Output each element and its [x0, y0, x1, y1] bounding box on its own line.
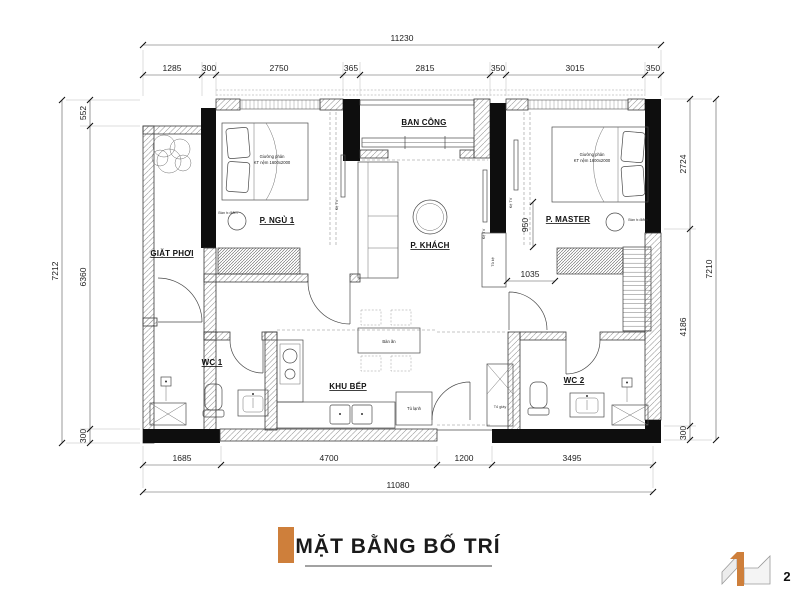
page-number: 2 [783, 569, 790, 584]
plant [152, 135, 191, 173]
tv1-label: Kệ TV [335, 199, 339, 210]
stove [280, 344, 300, 384]
doors [158, 278, 600, 420]
toilet2 [528, 382, 549, 415]
dim-top-3: 365 [344, 63, 358, 73]
kitchen-sink [330, 405, 372, 424]
dim-top-total: 11230 [390, 33, 413, 43]
dim-right-2: 300 [678, 426, 688, 440]
lamp-icon [161, 377, 171, 401]
dining-label: Bàn ăn [382, 339, 396, 344]
room-label-wc1: WC 1 [202, 358, 223, 367]
dim-left-1: 6360 [78, 267, 88, 286]
room-label-wc2: WC 2 [564, 376, 585, 385]
dim-bottom-3: 3495 [563, 453, 582, 463]
dim-950: 950 [520, 218, 530, 232]
closet-master [623, 247, 651, 331]
room-label-laundry: GIẶT PHƠI [150, 249, 193, 258]
title-accent-block [278, 527, 294, 563]
dim-top-7: 350 [646, 63, 660, 73]
bed1-label-1: Giường phản [260, 154, 286, 159]
shower2 [612, 405, 648, 425]
interior-dimensions: 950 1035 [504, 199, 558, 284]
wardrobe1 [218, 248, 300, 274]
dim-right-1: 4186 [678, 317, 688, 336]
tv-living-label: Kệ TV [482, 228, 486, 239]
dim-left-0: 552 [78, 106, 88, 120]
room-label-balcony: BAN CÔNG [401, 118, 446, 127]
dim-left-outer: 7212 [50, 261, 60, 280]
dim-bottom-1: 4700 [320, 453, 339, 463]
cabinet-label: Tủ kệ [491, 257, 495, 267]
fridge-label: Tủ lạnh [407, 406, 422, 411]
living-room: P. KHÁCH Kệ TV Tủ kệ [358, 162, 506, 287]
plan-drawing: GIẶT PHƠI Giường phản KT nệm 1600x2000 K… [0, 0, 800, 600]
shoe-cabinet-label: Tủ giày [494, 405, 507, 409]
dressing2-label: Bàn tr.điểm [628, 218, 647, 222]
dressing1-label: Bàn tr.điểm [218, 211, 237, 215]
dim-top-1: 300 [202, 63, 216, 73]
dim-top-6: 3015 [566, 63, 585, 73]
room-label-kitchen: KHU BẾP [329, 381, 367, 391]
dim-top-2: 2750 [270, 63, 289, 73]
dim-top-5: 350 [491, 63, 505, 73]
sink2 [570, 393, 604, 417]
room-label-living: P. KHÁCH [410, 241, 449, 250]
bed2 [552, 127, 648, 202]
dim-right-0: 2724 [678, 154, 688, 173]
fridge: Tủ lạnh [396, 392, 432, 425]
dining-set: Bàn ăn [358, 310, 420, 371]
dim-left-2: 300 [78, 429, 88, 443]
master-bedroom: Giường phản KT nệm 1600x2000 Kệ TV P. MA… [504, 112, 651, 331]
tv2 [514, 140, 518, 190]
room-label-bedroom1: P. NGỦ 1 [260, 216, 295, 225]
wardrobe2 [557, 248, 623, 274]
logo-orange-bar [737, 552, 744, 586]
dim-1035: 1035 [521, 269, 540, 279]
coffee-table [413, 200, 447, 234]
balcony: BAN CÔNG [401, 118, 446, 127]
dim-bottom-2: 1200 [455, 453, 474, 463]
bed2-label-2: KT nệm 1600x2000 [574, 158, 611, 163]
sink1 [238, 390, 268, 416]
dim-bottom-total: 11080 [386, 480, 409, 490]
tv2-label: Kệ TV [509, 197, 513, 208]
dim-top-4: 2815 [416, 63, 435, 73]
tv1 [341, 155, 345, 197]
logo: 2 [722, 552, 791, 586]
bed2-label-1: Giường phản [580, 152, 606, 157]
lamp2-icon [622, 378, 632, 402]
bedroom1: Giường phản KT nệm 1600x2000 Kệ TV P. NG… [218, 112, 345, 274]
washer [150, 403, 186, 425]
title-block: MẶT BẰNG BỐ TRÍ [278, 527, 501, 566]
dim-top-0: 1285 [163, 63, 182, 73]
kitchen: KHU BẾP Tủ lạnh Bàn ăn Tủ giày [277, 310, 513, 428]
wc2: WC 2 [528, 376, 648, 425]
bed1-label-2: KT nệm 1600x2000 [254, 160, 291, 165]
stool2 [606, 213, 624, 231]
floor-plan-sheet: GIẶT PHƠI Giường phản KT nệm 1600x2000 K… [0, 0, 800, 600]
room-label-master: P. MASTER [546, 215, 590, 224]
dim-right-outer: 7210 [704, 259, 714, 278]
tv-living [483, 170, 487, 222]
sofa [358, 162, 398, 278]
dim-bottom-0: 1685 [173, 453, 192, 463]
page-title: MẶT BẰNG BỐ TRÍ [295, 534, 500, 558]
